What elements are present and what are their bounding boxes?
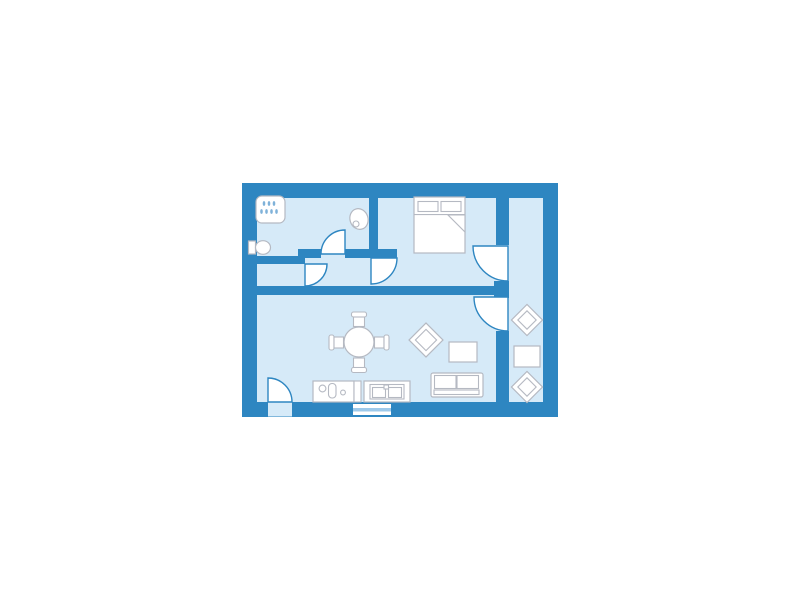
shower-head — [256, 196, 285, 223]
sofa-cushion-right — [457, 376, 479, 389]
coffee-table — [449, 342, 477, 362]
shower-drop — [263, 201, 266, 206]
kitchen-window-glass — [353, 408, 391, 412]
shower-drop — [265, 209, 268, 214]
kitchen-unit-divider — [354, 381, 361, 402]
bed-pillow-left — [418, 202, 438, 212]
dining-chair-east-back — [384, 335, 389, 350]
dining-chair-north-back — [352, 312, 367, 317]
bathroom-south-wall-step — [298, 249, 321, 258]
stove-oven — [329, 384, 337, 399]
shower-drop — [270, 209, 273, 214]
shower-drop — [273, 201, 276, 206]
sink-tap — [384, 385, 389, 389]
floor-plan — [0, 0, 800, 600]
dining-chair-west-back — [329, 335, 334, 350]
dining-chair-south-back — [352, 368, 367, 373]
living-room-north-wall — [257, 286, 497, 295]
stove-burner-large — [319, 385, 326, 392]
sofa-seat-front — [434, 390, 479, 395]
dining-chair-east-seat — [375, 337, 385, 348]
balcony-wall-lower — [496, 331, 509, 402]
dining-table — [344, 327, 374, 357]
bedroom-west-wall — [369, 198, 378, 258]
entry-doorway-gap — [268, 403, 292, 417]
shower-drop — [275, 209, 278, 214]
toilet-tank — [249, 241, 256, 254]
sink-basin-right — [389, 388, 402, 398]
stove-burner-small — [341, 390, 346, 395]
dining-chair-north-seat — [354, 317, 365, 327]
toilet-bowl — [256, 241, 271, 255]
sofa-cushion-left — [435, 376, 457, 389]
dining-chair-south-seat — [354, 358, 365, 368]
balcony-wall-upper — [496, 198, 509, 245]
balcony-table — [514, 346, 540, 367]
shower-drop — [268, 201, 271, 206]
shower-drop — [260, 209, 263, 214]
bathroom-south-wall-left — [257, 256, 305, 264]
floor-plan-canvas — [0, 0, 800, 600]
bathroom-sink-drain — [353, 221, 359, 227]
bed-pillow-right — [441, 202, 461, 212]
dining-chair-west-seat — [334, 337, 344, 348]
